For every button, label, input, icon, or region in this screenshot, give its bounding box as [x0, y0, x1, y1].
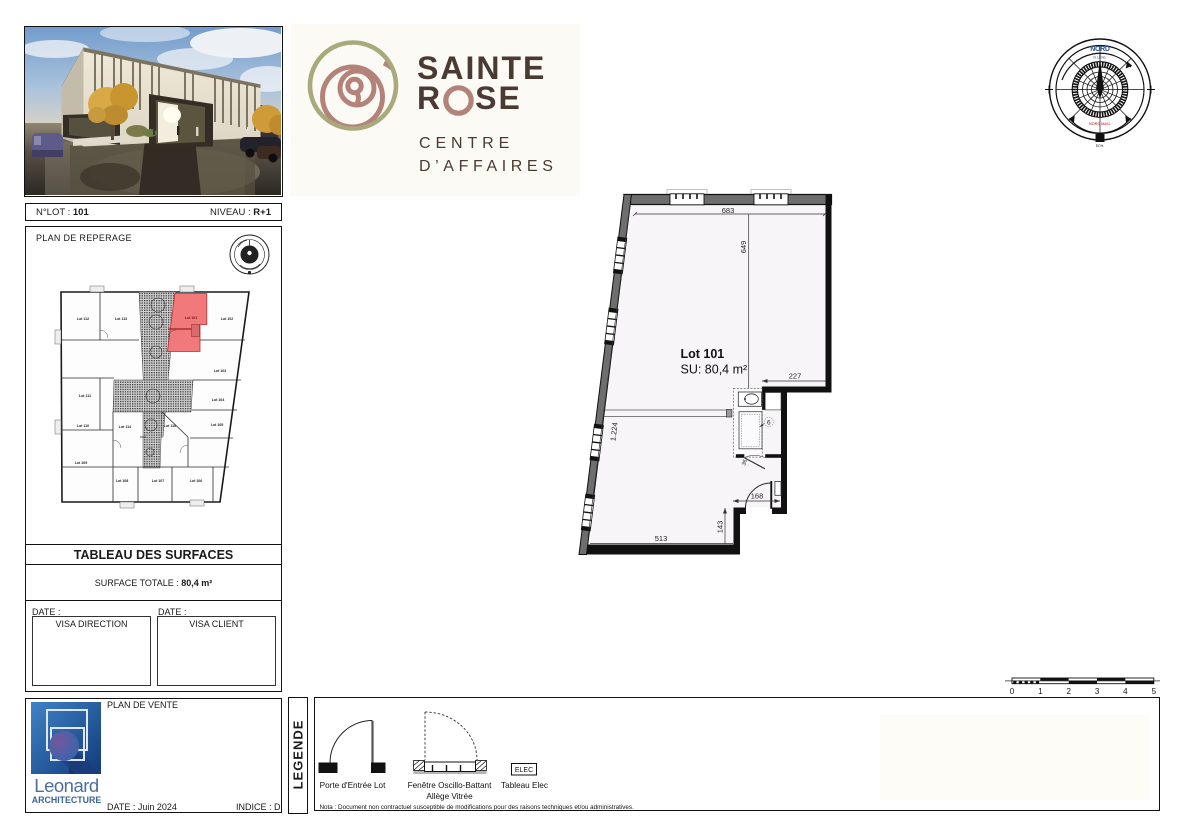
svg-text:0: 0 — [1010, 687, 1015, 696]
svg-text:Fenêtre Oscillo-Battant: Fenêtre Oscillo-Battant — [407, 781, 491, 790]
svg-text:143: 143 — [716, 521, 725, 534]
svg-text:Lot 105: Lot 105 — [211, 423, 224, 427]
svg-text:Lot 107: Lot 107 — [152, 479, 165, 483]
svg-text:1: 1 — [1038, 687, 1043, 696]
svg-text:Lot 112: Lot 112 — [77, 317, 89, 321]
svg-text:SU: 80,4 m²: SU: 80,4 m² — [681, 363, 748, 377]
svg-text:3: 3 — [1095, 687, 1100, 696]
svg-text:N.Lamb.: N.Lamb. — [1093, 56, 1106, 60]
svg-text:ECH.: ECH. — [1096, 144, 1104, 148]
svg-text:513: 513 — [655, 534, 668, 543]
svg-text:Nota : Document non contractue: Nota : Document non contractuel suscepti… — [319, 804, 634, 810]
svg-text:Lot 108: Lot 108 — [116, 479, 129, 483]
svg-text:Lot 102: Lot 102 — [221, 317, 234, 321]
svg-text:Lot 106: Lot 106 — [190, 479, 203, 483]
svg-text:683: 683 — [722, 206, 735, 215]
svg-text:Lot 116: Lot 116 — [164, 424, 176, 428]
svg-text:Lot 110: Lot 110 — [77, 424, 89, 428]
svg-text:6: 6 — [767, 419, 771, 426]
svg-text:Lot 111: Lot 111 — [79, 394, 91, 398]
svg-text:2: 2 — [1066, 687, 1071, 696]
svg-text:4: 4 — [1123, 687, 1128, 696]
svg-text:649: 649 — [739, 241, 748, 254]
svg-text:Lot 104: Lot 104 — [212, 398, 225, 402]
svg-text:Lot 109: Lot 109 — [75, 461, 88, 465]
svg-text:227: 227 — [789, 372, 802, 381]
svg-text:Porte d'Entrée Lot: Porte d'Entrée Lot — [319, 781, 385, 790]
svg-text:Tableau Elec: Tableau Elec — [501, 781, 548, 790]
svg-text:NORD: NORD — [1090, 46, 1110, 53]
svg-text:Lot 113: Lot 113 — [115, 317, 127, 321]
svg-text:Allège Vitrée: Allège Vitrée — [426, 792, 473, 801]
svg-text:Lot 103: Lot 103 — [214, 369, 227, 373]
svg-text:ELEC: ELEC — [514, 767, 532, 774]
svg-text:5: 5 — [1152, 687, 1157, 696]
svg-text:NORD MAG.: NORD MAG. — [1089, 122, 1111, 126]
svg-text:Lot 101: Lot 101 — [185, 316, 198, 320]
svg-text:Lot 101: Lot 101 — [681, 347, 725, 361]
svg-text:168: 168 — [751, 492, 764, 501]
svg-text:Lot 114: Lot 114 — [119, 425, 131, 429]
